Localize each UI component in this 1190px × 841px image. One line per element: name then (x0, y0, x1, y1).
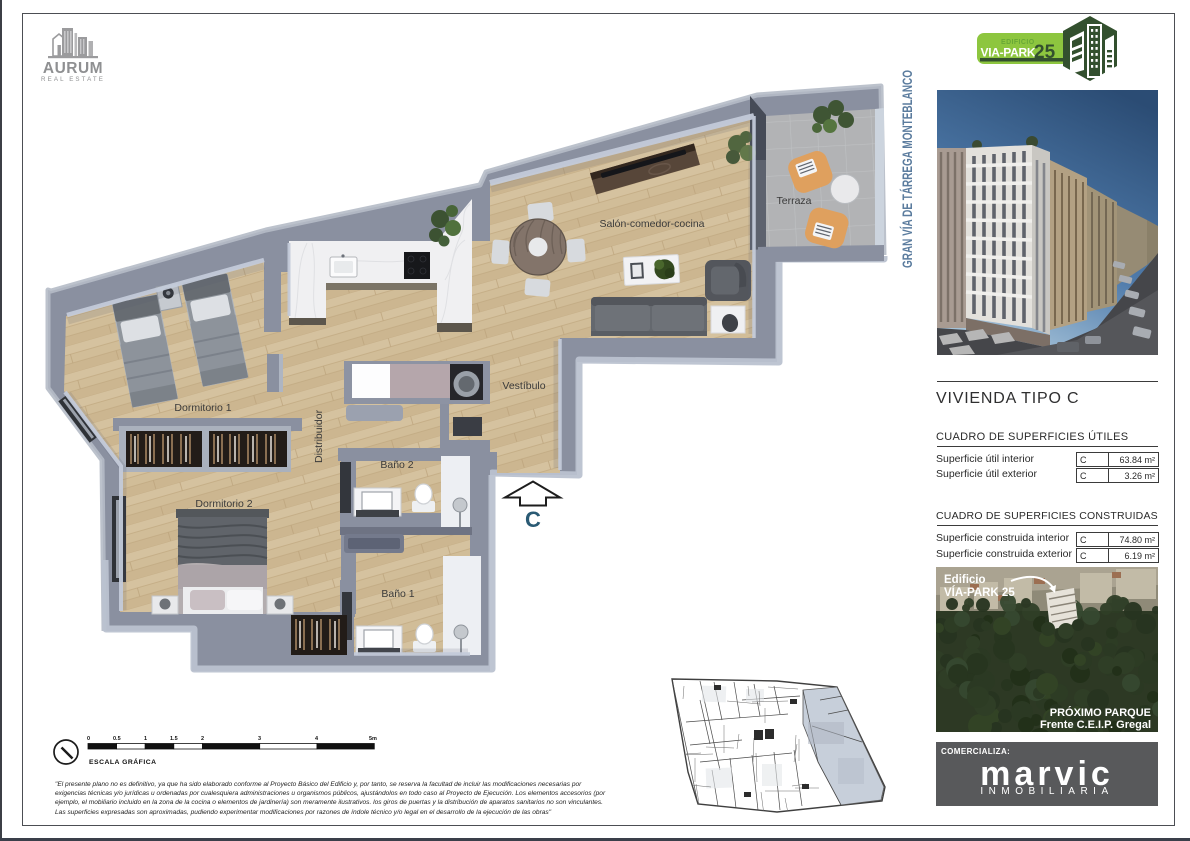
svg-text:Baño 1: Baño 1 (381, 588, 414, 600)
svg-text:Vestíbulo: Vestíbulo (502, 380, 545, 392)
svg-text:5m: 5m (369, 736, 377, 742)
svg-text:0.5: 0.5 (113, 736, 121, 742)
svg-text:1: 1 (144, 736, 147, 742)
svg-text:4: 4 (315, 736, 319, 742)
svg-text:2: 2 (201, 736, 204, 742)
svg-text:Dormitorio 1: Dormitorio 1 (174, 402, 231, 414)
svg-text:Terraza: Terraza (776, 195, 811, 207)
svg-text:0: 0 (87, 736, 90, 742)
svg-text:Distribuidor: Distribuidor (313, 409, 325, 463)
svg-text:ESCALA GRÁFICA: ESCALA GRÁFICA (89, 757, 157, 766)
svg-text:C: C (525, 507, 541, 532)
svg-text:Dormitorio 2: Dormitorio 2 (195, 498, 252, 510)
svg-text:Baño 2: Baño 2 (380, 459, 413, 471)
svg-text:3: 3 (258, 736, 261, 742)
svg-text:1.5: 1.5 (170, 736, 178, 742)
svg-text:Salón-comedor-cocina: Salón-comedor-cocina (599, 218, 704, 230)
svg-text:GRAN VÍA DE TÁRREGA MONTEBLANC: GRAN VÍA DE TÁRREGA MONTEBLANCO (899, 70, 915, 268)
